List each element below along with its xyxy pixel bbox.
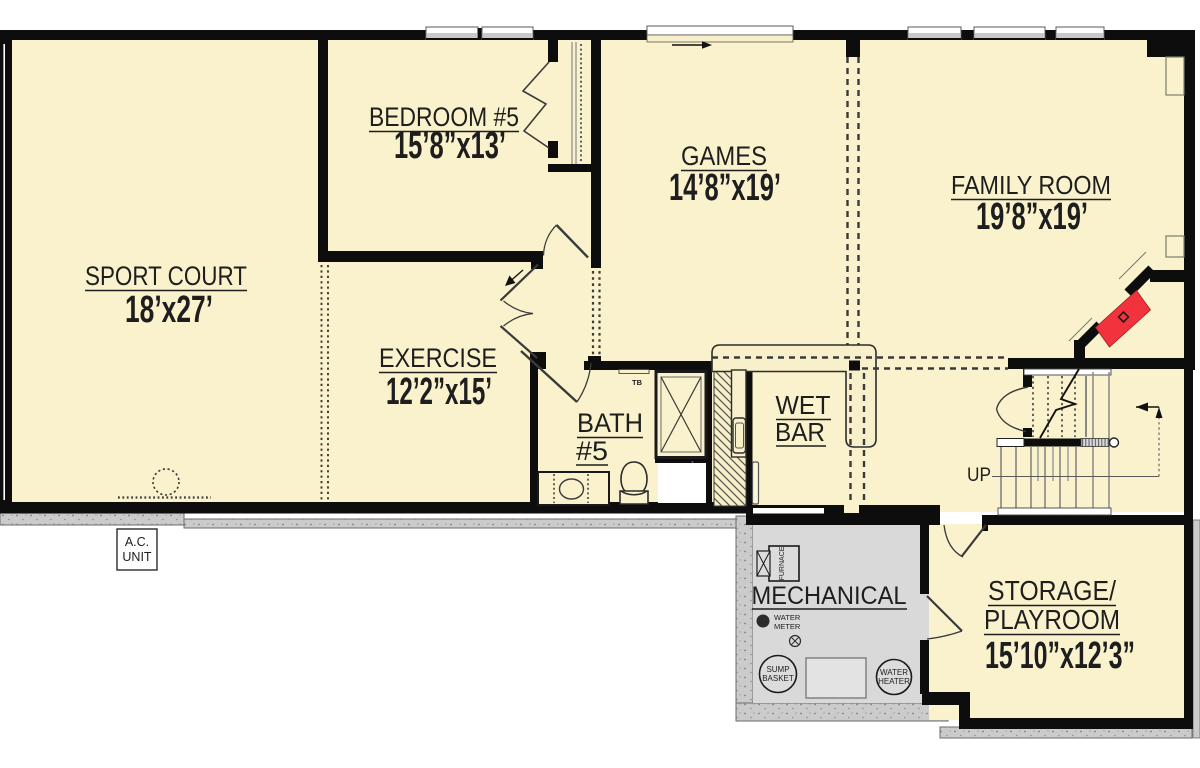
- svg-text:WATER: WATER: [774, 613, 801, 622]
- svg-text:18’x27’: 18’x27’: [125, 289, 213, 331]
- svg-text:METER: METER: [774, 622, 801, 631]
- svg-text:UP: UP: [967, 465, 991, 486]
- svg-text:15’8”x13’: 15’8”x13’: [394, 125, 506, 167]
- svg-text:WET: WET: [776, 390, 831, 420]
- svg-text:WATER: WATER: [880, 668, 908, 677]
- svg-text:HEATER: HEATER: [878, 677, 910, 686]
- svg-text:SPORT COURT: SPORT COURT: [85, 261, 247, 291]
- svg-text:BASKET: BASKET: [762, 674, 794, 683]
- svg-text:UNIT: UNIT: [122, 550, 152, 564]
- svg-text:EXERCISE: EXERCISE: [379, 343, 497, 373]
- svg-text:MECHANICAL: MECHANICAL: [752, 582, 907, 610]
- svg-text:15’10”x12’3”: 15’10”x12’3”: [985, 635, 1135, 677]
- svg-text:A.C.: A.C.: [125, 535, 149, 549]
- svg-text:BATH: BATH: [577, 408, 643, 438]
- svg-text:14’8”x19’: 14’8”x19’: [669, 167, 781, 209]
- svg-text:#5: #5: [576, 436, 608, 466]
- svg-text:12’2”x15’: 12’2”x15’: [386, 371, 492, 413]
- svg-text:TB: TB: [632, 378, 643, 387]
- svg-text:SUMP: SUMP: [766, 665, 789, 674]
- svg-text:19’8”x19’: 19’8”x19’: [976, 196, 1088, 238]
- svg-text:STORAGE/: STORAGE/: [988, 575, 1116, 606]
- svg-text:PLAYROOM: PLAYROOM: [984, 604, 1120, 635]
- svg-text:BAR: BAR: [775, 417, 825, 447]
- svg-text:FURNACE: FURNACE: [779, 546, 786, 580]
